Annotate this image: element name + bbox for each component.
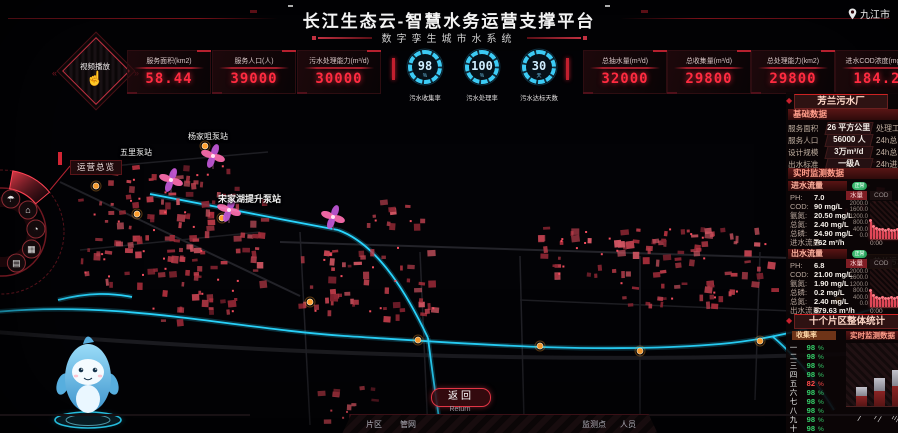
xtick: 0:00 [870,240,898,247]
location-pin-icon [848,8,857,20]
building [234,298,237,301]
basic-row-value-text: 26 平方公里 [828,123,871,133]
flow-row-value: 7.0 [814,193,824,202]
flow-row: 总磷:24.90 mg/L [790,229,846,238]
district-rate-value: 82 [799,379,815,388]
building [354,262,362,266]
gauge-ring-icon: 98% [401,46,449,88]
pinwheel-center [169,178,173,182]
rate-row: 二98% [788,352,842,361]
radial-menu[interactable]: ☂⌂◔▦▤ [0,150,130,325]
stat-underline [590,67,660,69]
stat-label: 进水COD浓度(mg/L) [839,55,898,65]
building [333,389,340,397]
bottom-tab-管网[interactable]: 管网 [400,419,416,430]
return-button-en: Return [431,406,489,413]
building [353,300,359,305]
ytick: 1600.0 [846,207,868,213]
flow-row: 总磷:0.2 mg/L [790,288,846,297]
building [754,242,760,247]
percent-unit: % [818,390,824,397]
stat-right-3: 进水COD浓度(mg/L)184.2 [835,50,898,94]
gauge-1: 100%污水处理率 [458,46,506,103]
building [664,231,668,237]
gauge-unit: 天 [536,73,541,79]
building [420,219,425,224]
dashboard-root: 五里泵站杨家咀泵站宋家湖提升泵站芳兰污水厂 长江生态云-智慧水务运营支撑平台 数… [0,0,898,433]
percent-unit: % [818,345,824,352]
alert-dot [585,231,587,233]
building [393,302,401,308]
districts-header: 十个片区整体统计 [794,314,898,329]
building [621,271,625,278]
building [396,314,400,321]
building [226,169,230,175]
mascot-eye-glint [95,369,96,370]
building [207,219,215,225]
pump-marker-icon[interactable] [637,348,643,354]
basic-row: 服务面积26 平方公里处理工 [788,122,898,134]
district-name: 二 [788,352,799,361]
building [325,298,329,304]
building [342,262,346,267]
video-play-button[interactable]: « 视频播放 ☝ » [60,44,130,102]
alert-dot [764,243,766,245]
building [400,308,406,312]
building [331,267,335,271]
map-label-2[interactable]: 宋家湖提升泵站 [218,192,281,205]
building [328,276,336,283]
building [201,201,210,208]
building [367,223,371,228]
alert-dot [561,238,563,240]
building [751,281,760,288]
gauge-label: 污水处理率 [460,94,503,103]
building [161,319,166,322]
page-subtitle: 数字孪生城市水系统 [382,30,517,45]
alert-dot [315,310,317,312]
flow-row-label: 总氮: [790,220,814,229]
building [371,399,379,402]
building [371,387,376,391]
chart-icon: ▦ [27,244,36,254]
alert-dot [584,242,586,244]
alert-dot [410,220,412,222]
district-name: 五 [788,379,799,388]
building [380,199,388,205]
building [701,241,708,247]
alert-dot [164,211,166,213]
radial-connector [50,166,70,190]
rate-row: 九98% [788,415,842,424]
building [648,304,652,309]
stat-value: 30000 [298,71,380,87]
stat-right-2: 总处理能力(km2)29800 [751,50,835,94]
building [400,266,403,271]
alert-dot [558,273,560,275]
alert-dot [736,291,738,293]
stat-value: 32000 [584,71,666,87]
district-bar [874,378,885,406]
bottom-tab-监测点[interactable]: 监测点 [582,419,606,430]
flow-mini-chart: 水量COD2000.01600.01200.0800.0400.00.00:00… [846,259,898,315]
radial-menu-item[interactable]: ▤ [7,254,25,272]
building [167,256,173,262]
stat-label: 总处理能力(km2) [755,55,830,65]
building [552,264,558,267]
building [169,235,174,241]
building [427,250,436,257]
basic-row-label2: 24h总 [876,147,897,158]
chart-bar [894,300,896,307]
chart-tab-COD[interactable]: COD [870,259,892,268]
return-button[interactable]: 返回 [431,388,491,407]
gauge-value: 100 [471,59,493,73]
building [327,310,331,316]
basic-row-value-text: 3万m³/d [834,147,863,157]
ytick: 400.0 [846,295,868,301]
pump-marker-icon[interactable] [307,299,313,305]
alert-dot [342,417,344,419]
status-badge: 正常 [852,182,867,190]
chart-tabs: 水量COD [846,191,898,200]
stat-right-1: 总收集量(m³/d)29800 [667,50,751,94]
district-name: 三 [788,361,799,370]
building [767,262,776,270]
chart-bar [885,232,887,239]
percent-unit: % [818,426,824,433]
building [558,257,561,260]
building [206,225,214,231]
building [710,285,714,288]
stat-right-0: 总抽水量(m³/d)32000 [583,50,667,94]
district-bar-bottom [856,396,867,406]
stat-label: 服务人口(人) [216,55,291,65]
mascot-eye-right [93,368,98,373]
alert-dot [690,233,692,235]
stat-label: 总收集量(m³/d) [671,55,746,65]
building [700,227,705,232]
stat-left-2: 污水处理能力(m³/d)30000 [297,50,381,94]
rate-row: 三98% [788,361,842,370]
realtime-header: 实时监测数据 [788,168,898,179]
gauge-0: 98%污水收集率 [401,46,449,103]
building [385,287,390,294]
stat-label: 服务面积(km2) [131,55,206,65]
percent-unit: % [818,399,824,406]
district-name: 六 [788,388,799,397]
alert-dot [138,198,140,200]
building [661,284,664,289]
building [158,272,166,278]
building [622,296,627,299]
building [587,272,592,277]
alert-dot [201,293,203,295]
building [221,261,228,264]
building [543,227,550,230]
district-rate-value: 98 [799,361,815,370]
building [187,213,191,219]
gauge-label: 污水收集率 [403,94,446,103]
building [407,265,415,270]
bottom-tab-片区[interactable]: 片区 [366,419,382,430]
building [250,221,256,228]
district-bar-chart [846,343,898,407]
district-bar-bottom [874,391,885,406]
building [381,256,386,259]
district-name: 四 [788,370,799,379]
pinwheel-center [331,215,335,219]
stat-value: 58.44 [128,71,210,87]
chart-plot: 2000.01600.01200.0800.0400.00.0 [846,201,898,240]
building [704,228,712,235]
basic-row-label: 服务面积 [788,123,818,133]
chart-bar [891,299,893,307]
alert-dot [671,298,673,300]
building [660,302,663,308]
alert-dot [702,237,704,239]
footer-line-right [648,414,898,416]
mascot-blush [98,375,102,378]
ytick: 1200.0 [846,282,868,288]
bottom-tab-人员[interactable]: 人员 [620,419,636,430]
alert-dot [232,310,234,312]
building [418,282,425,286]
alert-dot [380,307,382,309]
menu-selected-label[interactable]: 运营总览 [70,160,122,175]
map-label-1[interactable]: 杨家咀泵站 [188,131,228,142]
mascot-eye-left [79,368,84,373]
radial-menu-item[interactable]: ▦ [22,240,40,258]
building [146,196,153,202]
alert-dot [330,410,332,412]
building [660,270,667,274]
stat-value: 39000 [213,71,295,87]
building [657,296,663,301]
building [242,248,250,253]
building [653,272,661,278]
building [180,255,184,262]
chart-plot: 2000.01600.01200.0800.0400.00.0 [846,269,898,308]
building [200,182,203,188]
building [612,269,616,273]
building [165,236,170,240]
ytick: 2000.0 [846,269,868,275]
building [359,386,365,391]
alert-dot [153,229,155,231]
pump-marker-icon[interactable] [415,337,421,343]
pump-marker-icon[interactable] [757,338,763,344]
ytick: 0.0 [846,233,868,239]
flow-mini-chart: 水量COD2000.01600.01200.0800.0400.00.00:00… [846,191,898,247]
rate-row: 五82% [788,379,842,388]
building [167,249,175,252]
flow-row: 进水流量:762 m³/h [790,238,846,247]
chart-bar [885,300,887,307]
building [226,309,230,315]
building [209,298,213,302]
building [744,260,751,263]
flow-row-label: COD: [790,202,814,211]
flow-row-value: 2.40 mg/L [814,297,849,306]
chart-tab-水量[interactable]: 水量 [846,191,867,200]
building [360,255,366,259]
building [176,198,180,205]
plant-title: 芳兰污水厂 [794,94,888,109]
mascot-head-fin [83,336,94,344]
alert-dot [397,247,399,249]
alert-dot [341,275,343,277]
building [419,298,423,303]
building [626,271,631,276]
flow-row: COD:90 mg/L [790,202,846,211]
alert-dot [200,250,202,252]
district-rate-value: 98 [799,424,815,433]
alert-dot [703,257,705,259]
building-icon: ⌂ [25,205,30,215]
building [694,251,701,257]
building [677,251,684,254]
building [179,248,183,252]
district-monitor-header: 实时监测数据 [846,331,898,340]
building [571,228,579,235]
gauge-ring-icon: 100% [458,46,506,88]
building [414,224,421,231]
mascot-belly [76,385,100,413]
alert-dot [165,268,167,270]
radial-menu-item[interactable]: ⌂ [19,201,37,219]
alert-dot [330,254,332,256]
district-bar-top [892,370,898,386]
chart-tab-水量[interactable]: 水量 [846,259,867,268]
flow-row: 总氮:2.40 mg/L [790,297,846,306]
building [169,271,177,278]
building [706,301,710,309]
ytick: 0.0 [846,301,868,307]
pump-marker-icon[interactable] [537,343,543,349]
building [132,165,140,170]
building [363,272,369,280]
chart-tabs: 水量COD [846,259,898,268]
alert-dot [323,259,325,261]
building [675,262,682,268]
district-bar-top [856,387,867,396]
hand-cursor-icon: ☝ [60,70,130,87]
district-bar-bottom [892,386,898,406]
stat-value: 184.2 [836,71,898,87]
building [209,307,214,310]
alert-dot [196,174,198,176]
percent-unit: % [818,372,824,379]
mascot-face [72,359,104,385]
building [711,303,718,309]
building [700,295,704,302]
percent-unit: % [818,417,824,424]
building [735,236,738,243]
pinwheel-icon[interactable] [158,167,184,193]
radial-menu-item[interactable]: ☂ [2,190,20,208]
building [646,246,653,251]
building [674,257,681,261]
flow-row-label: 总氮: [790,297,814,306]
basic-row-label: 服务人口 [788,135,818,145]
building [330,294,338,301]
building [220,299,226,303]
building [168,192,176,195]
alert-dot [576,247,578,249]
stat-value: 29800 [752,71,834,87]
building [153,268,158,272]
building [193,238,200,242]
building [756,273,763,280]
building [183,165,190,171]
alert-dot [143,250,145,252]
flow-row: 总氮:2.40 mg/L [790,220,846,229]
flow-row-value: 90 mg/L [814,202,842,211]
building [318,391,326,397]
building [720,228,725,233]
chart-tab-COD[interactable]: COD [870,191,892,200]
flow-row-label: 总磷: [790,229,814,238]
flow-row-value: 1.90 mg/L [814,279,849,288]
basic-row: 设计规模3万m³/d24h总 [788,146,898,158]
building [257,262,264,269]
chart-bar [882,231,884,239]
alert-dot [232,290,234,292]
building [626,241,635,249]
district-bar [856,387,867,406]
building [186,176,190,184]
building [135,251,142,258]
building [181,282,184,287]
flow-row: PH:7.0 [790,193,846,202]
radial-menu-item[interactable]: ◔ [27,220,45,238]
umbrella-icon: ☂ [7,194,15,204]
building [633,252,640,259]
district-name: 七 [788,397,799,406]
building [324,250,330,256]
alert-dot [562,266,564,268]
pump-marker-icon[interactable] [202,143,208,149]
building [197,266,202,272]
building [151,174,156,180]
ytick: 1600.0 [846,275,868,281]
building [261,218,269,222]
chevron-left-icon: « [52,68,56,78]
radial-slider[interactable] [58,152,62,165]
building [330,289,336,295]
pump-marker-icon[interactable] [134,211,140,217]
building [177,214,186,222]
building [632,286,639,289]
flow-row-value: 6.8 [814,261,824,270]
gauge-value: 30 [532,59,546,73]
building [383,316,391,323]
flow-row-label: COD: [790,270,814,279]
building [643,257,650,264]
building [543,246,548,253]
building [588,238,592,243]
building [617,250,626,257]
building [636,228,641,231]
alert-dot [372,266,374,268]
city-selector[interactable]: 九江市 [848,6,890,21]
ytick: 400.0 [846,227,868,233]
building [407,278,410,282]
basic-row-label2: 处理工 [876,123,898,134]
flow-row-value: 0.2 mg/L [814,288,844,297]
district-name: 一 [788,343,799,352]
